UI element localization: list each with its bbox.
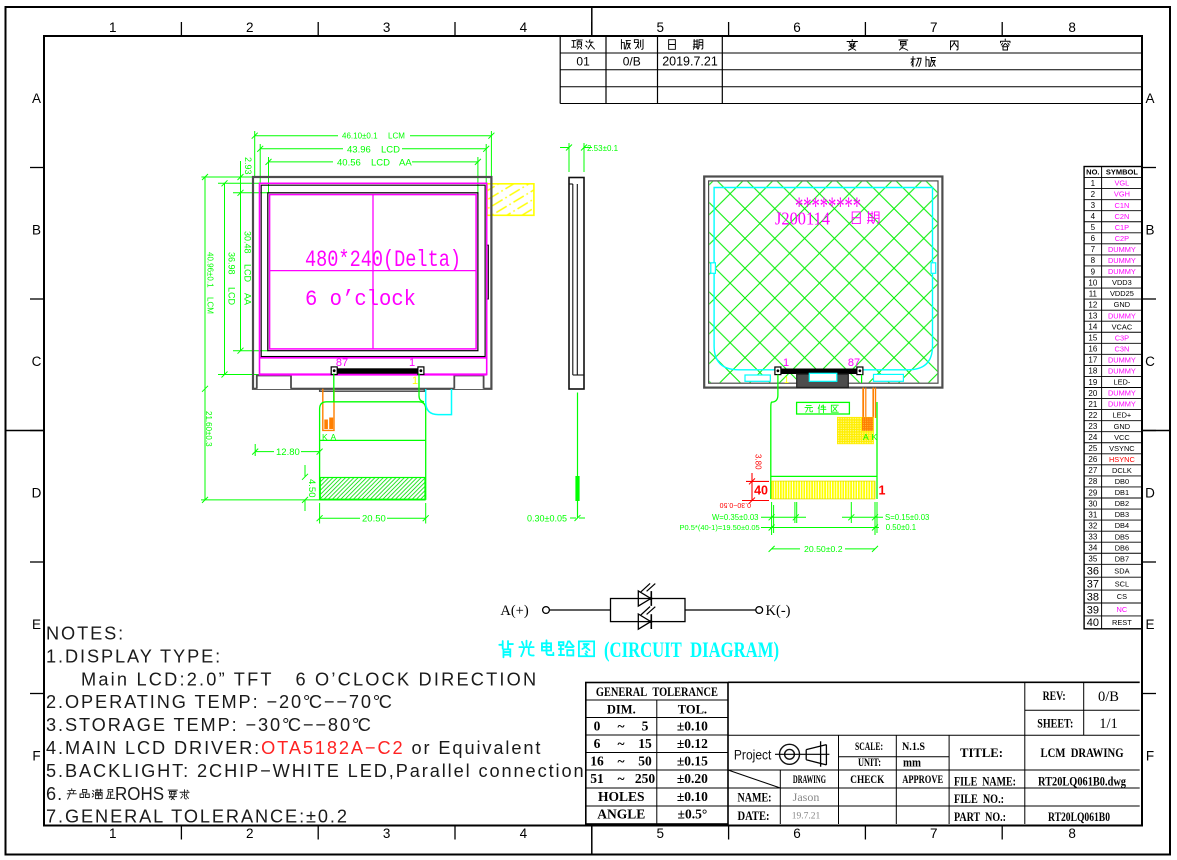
svg-text:E: E (32, 617, 41, 632)
svg-text:LCD: LCD (381, 144, 400, 155)
svg-text:HOLES: HOLES (598, 789, 645, 804)
svg-text:7: 7 (930, 826, 938, 841)
svg-text:±0.5°: ±0.5° (678, 807, 708, 822)
svg-text:DATE:: DATE: (738, 809, 770, 823)
svg-text:0/B: 0/B (1098, 689, 1119, 705)
svg-text:Jason: Jason (793, 790, 820, 804)
svg-text:20: 20 (1088, 389, 1097, 398)
svg-text:7.GENERAL TOLERANCE:±0.2: 7.GENERAL TOLERANCE:±0.2 (46, 807, 349, 827)
svg-text:DUMMY: DUMMY (1108, 267, 1136, 276)
svg-text:(CIRCUIT DIAGRAM): (CIRCUIT DIAGRAM) (604, 637, 779, 662)
svg-text:DB2: DB2 (1115, 499, 1129, 508)
svg-text:15: 15 (638, 736, 652, 751)
svg-text:LCM: LCM (206, 297, 215, 314)
svg-text:9: 9 (1091, 267, 1096, 276)
svg-text:DUMMY: DUMMY (1108, 400, 1136, 409)
svg-text:28: 28 (1088, 477, 1097, 486)
svg-text:SCALE:: SCALE: (855, 741, 883, 753)
svg-text:0.50±0.1: 0.50±0.1 (886, 523, 916, 532)
svg-text:DIM.: DIM. (607, 702, 636, 716)
svg-text:30.48: 30.48 (243, 231, 253, 254)
svg-text:mm: mm (903, 755, 921, 770)
svg-text:35: 35 (1088, 555, 1097, 564)
svg-text:ANGLE: ANGLE (597, 807, 645, 822)
svg-text:B: B (1145, 222, 1154, 237)
svg-text:38: 38 (1087, 591, 1099, 603)
svg-text:C1P: C1P (1115, 223, 1129, 232)
svg-text:Project: Project (734, 746, 772, 762)
svg-text:2.93: 2.93 (243, 157, 253, 175)
svg-text:40.56: 40.56 (337, 157, 361, 168)
svg-text:VCC: VCC (1114, 433, 1130, 442)
svg-text:1: 1 (109, 826, 117, 841)
svg-text:14: 14 (1088, 323, 1097, 332)
svg-text:~: ~ (617, 754, 624, 769)
svg-text:6: 6 (594, 736, 601, 751)
svg-text:11: 11 (1089, 289, 1098, 298)
svg-text:17: 17 (1088, 356, 1097, 365)
svg-text:LED-: LED- (1113, 378, 1130, 387)
svg-text:HSYNC: HSYNC (1109, 455, 1136, 464)
svg-text:12: 12 (1088, 300, 1097, 309)
svg-text:1: 1 (784, 375, 789, 385)
svg-text:DUMMY: DUMMY (1108, 256, 1136, 265)
svg-text:A: A (1145, 91, 1154, 106)
svg-text:NAME:: NAME: (738, 791, 772, 805)
svg-text:50: 50 (638, 754, 652, 769)
svg-text:8: 8 (1091, 256, 1096, 265)
svg-text:20.50: 20.50 (362, 514, 386, 525)
svg-text:APPROVE: APPROVE (902, 772, 943, 786)
svg-text:LCD: LCD (371, 157, 390, 168)
svg-text:5.BACKLIGHT: 2CHIP−WHITE LED,P: 5.BACKLIGHT: 2CHIP−WHITE LED,Parallel co… (46, 761, 586, 781)
svg-text:3: 3 (383, 826, 391, 841)
svg-text:AA: AA (399, 157, 412, 168)
svg-text:DB7: DB7 (1115, 554, 1129, 563)
svg-text:SHEET:: SHEET: (1037, 715, 1073, 730)
svg-text:01: 01 (576, 55, 590, 69)
svg-text:DB4: DB4 (1115, 521, 1129, 530)
svg-text:39: 39 (1087, 604, 1099, 616)
svg-text:LCM: LCM (388, 132, 405, 141)
svg-text:LCM DRAWING: LCM DRAWING (1041, 745, 1124, 760)
svg-text:2: 2 (246, 826, 254, 841)
svg-text:GENERAL TOLERANCE: GENERAL TOLERANCE (596, 684, 718, 699)
svg-text:A: A (863, 432, 869, 442)
svg-text:3: 3 (1091, 201, 1096, 210)
svg-text:~: ~ (617, 719, 624, 734)
svg-text:6: 6 (793, 20, 801, 35)
svg-text:SDA: SDA (1114, 566, 1129, 575)
svg-text:VDD25: VDD25 (1110, 289, 1134, 298)
svg-text:25: 25 (1088, 444, 1097, 453)
svg-text:DB1: DB1 (1115, 488, 1129, 497)
svg-text:REV:: REV: (1043, 688, 1066, 703)
svg-text:DCLK: DCLK (1112, 466, 1132, 475)
svg-text:5: 5 (656, 20, 664, 35)
svg-text:51: 51 (590, 771, 604, 786)
svg-text:CS: CS (1117, 592, 1127, 601)
svg-text:ROHS: ROHS (115, 784, 164, 804)
svg-text:0: 0 (594, 719, 601, 734)
svg-text:4.MAIN LCD DRIVER:OTA5182A−C2: 4.MAIN LCD DRIVER:OTA5182A−C2 or Equival… (46, 738, 542, 758)
svg-text:0/B: 0/B (623, 55, 641, 69)
svg-text:21: 21 (1088, 400, 1097, 409)
svg-text:15: 15 (1088, 334, 1097, 343)
svg-text:B: B (32, 222, 41, 237)
svg-text:24: 24 (1088, 433, 1097, 442)
svg-text:16: 16 (590, 754, 604, 769)
svg-text:F: F (1146, 749, 1154, 764)
svg-text:250: 250 (635, 771, 656, 786)
svg-text:22: 22 (1088, 411, 1097, 420)
svg-text:40.96±0.1: 40.96±0.1 (206, 252, 215, 288)
svg-text:C2N: C2N (1115, 212, 1130, 221)
svg-text:27: 27 (1088, 466, 1097, 475)
svg-text:K(-): K(-) (766, 603, 791, 619)
svg-text:~: ~ (617, 736, 624, 751)
svg-text:40: 40 (1087, 617, 1099, 629)
svg-text:RT20LQ061B0: RT20LQ061B0 (1048, 809, 1110, 824)
svg-text:1.DISPLAY TYPE:: 1.DISPLAY TYPE: (46, 646, 222, 666)
svg-text:VGH: VGH (1114, 190, 1130, 199)
svg-text:CHECK: CHECK (850, 772, 885, 786)
svg-text:1: 1 (412, 375, 418, 387)
svg-text:40: 40 (754, 484, 768, 498)
svg-text:480*240(Delta): 480*240(Delta) (305, 247, 461, 274)
svg-text:7: 7 (930, 20, 938, 35)
svg-text:87: 87 (336, 357, 348, 369)
svg-text:2.53±0.1: 2.53±0.1 (587, 144, 619, 153)
svg-text:16: 16 (1088, 345, 1097, 354)
svg-text:VDD3: VDD3 (1112, 278, 1132, 287)
svg-text:F: F (32, 749, 40, 764)
svg-text:5: 5 (656, 826, 664, 841)
svg-text:DB5: DB5 (1115, 532, 1129, 541)
svg-text:34: 34 (1088, 544, 1097, 553)
svg-text:8: 8 (1068, 20, 1076, 35)
svg-text:5: 5 (1091, 223, 1096, 232)
svg-text:S=0.15±0.03: S=0.15±0.03 (885, 513, 929, 522)
svg-text:±0.10: ±0.10 (677, 719, 708, 734)
svg-text:4: 4 (520, 826, 528, 841)
svg-text:TOL.: TOL. (678, 702, 707, 716)
svg-text:C2P: C2P (1115, 234, 1129, 243)
svg-text:1: 1 (783, 357, 789, 369)
svg-text:E: E (1145, 617, 1154, 632)
svg-text:GND: GND (1114, 300, 1130, 309)
svg-text:PART NO.:: PART NO.: (954, 810, 1006, 824)
svg-text:C: C (1145, 354, 1155, 369)
svg-text:W=0.35±0.03: W=0.35±0.03 (712, 513, 759, 522)
svg-text:VGL: VGL (1115, 179, 1130, 188)
svg-text:43.96: 43.96 (347, 144, 371, 155)
svg-text:6: 6 (1091, 234, 1096, 243)
svg-text:DB6: DB6 (1115, 543, 1129, 552)
svg-text:1: 1 (879, 484, 886, 498)
svg-text:29: 29 (1088, 488, 1097, 497)
svg-text:1/1: 1/1 (1099, 716, 1118, 732)
svg-text:6: 6 (793, 826, 801, 841)
svg-text:0.30±0.05: 0.30±0.05 (527, 514, 567, 524)
svg-text:NO.: NO. (1086, 168, 1099, 177)
svg-text:87: 87 (848, 357, 860, 369)
svg-text:23: 23 (1088, 422, 1097, 431)
svg-text:18: 18 (1088, 367, 1097, 376)
svg-text:26: 26 (1088, 455, 1097, 464)
svg-text:A: A (32, 91, 41, 106)
svg-text:RT20LQ061B0.dwg: RT20LQ061B0.dwg (1038, 774, 1126, 789)
svg-text:UNIT:: UNIT: (858, 757, 881, 769)
svg-text:LCD: LCD (243, 264, 253, 283)
svg-text:36.98: 36.98 (227, 252, 237, 275)
svg-text:21.60±0.3: 21.60±0.3 (204, 411, 213, 447)
svg-text:LED+: LED+ (1113, 411, 1132, 420)
svg-text:C: C (32, 354, 42, 369)
svg-text:P0.5*(40-1)=19.50±0.05: P0.5*(40-1)=19.50±0.05 (679, 523, 759, 532)
svg-text:~: ~ (617, 771, 624, 786)
svg-text:VCAC: VCAC (1112, 322, 1133, 331)
svg-text:8: 8 (1068, 826, 1076, 841)
svg-text:12.80: 12.80 (276, 447, 300, 458)
svg-text:2: 2 (246, 20, 254, 35)
svg-text:10: 10 (1088, 278, 1097, 287)
svg-text:±0.15: ±0.15 (677, 754, 708, 769)
svg-text:46.10±0.1: 46.10±0.1 (342, 132, 378, 141)
svg-text:2: 2 (1091, 190, 1096, 199)
svg-text:33: 33 (1088, 532, 1097, 541)
svg-text:3.80: 3.80 (754, 454, 763, 470)
svg-text:LCD: LCD (227, 287, 237, 306)
svg-text:4.50: 4.50 (306, 479, 317, 498)
svg-text:GND: GND (1114, 422, 1130, 431)
svg-text:A(+): A(+) (500, 603, 528, 619)
svg-text:DUMMY: DUMMY (1108, 367, 1136, 376)
svg-text:6 o’clock: 6 o’clock (305, 286, 416, 312)
svg-text:31: 31 (1088, 510, 1097, 519)
svg-text:3: 3 (383, 20, 391, 35)
svg-text:19: 19 (1088, 378, 1097, 387)
svg-text:NOTES:: NOTES: (46, 624, 125, 644)
svg-text:Main LCD:2.0” TFT 6 O’CLOCK: Main LCD:2.0” TFT 6 O’CLOCK DIRECTION (81, 669, 538, 689)
svg-text:37: 37 (1087, 579, 1099, 591)
svg-text:±0.12: ±0.12 (677, 736, 708, 751)
svg-text:4: 4 (520, 20, 528, 35)
svg-text:C3P: C3P (1115, 333, 1129, 342)
svg-text:K: K (872, 432, 878, 442)
svg-text:SYMBOL: SYMBOL (1106, 168, 1139, 177)
svg-text:C3N: C3N (1115, 344, 1130, 353)
svg-text:3.STORAGE TEMP: −30°C−−80°C: 3.STORAGE TEMP: −30°C−−80°C (46, 715, 373, 735)
svg-text:DUMMY: DUMMY (1108, 389, 1136, 398)
svg-text:DUMMY: DUMMY (1108, 311, 1136, 320)
svg-text:FILE NO.:: FILE NO.: (954, 792, 1004, 806)
svg-text:1: 1 (409, 357, 415, 369)
svg-text:J200114: J200114 (775, 209, 830, 229)
svg-text:DB0: DB0 (1115, 477, 1129, 486)
svg-text:DB3: DB3 (1115, 510, 1129, 519)
svg-text:±0.20: ±0.20 (677, 771, 708, 786)
svg-text:±0.10: ±0.10 (677, 789, 708, 804)
svg-text:20.50±0.2: 20.50±0.2 (804, 544, 843, 554)
svg-text:4: 4 (1091, 212, 1096, 221)
svg-text:N.1.S: N.1.S (902, 741, 925, 753)
svg-text:SCL: SCL (1115, 579, 1129, 588)
svg-text:6.: 6. (46, 784, 63, 804)
svg-text:0.30~0.50: 0.30~0.50 (720, 501, 751, 508)
svg-text:2019.7.21: 2019.7.21 (662, 55, 718, 69)
svg-text:DUMMY: DUMMY (1108, 245, 1136, 254)
svg-text:5: 5 (642, 719, 649, 734)
svg-text:D: D (1145, 485, 1155, 500)
svg-text:TITLE:: TITLE: (960, 745, 1003, 760)
svg-text:2.OPERATING TEMP: −20°C−−70°C: 2.OPERATING TEMP: −20°C−−70°C (46, 692, 394, 712)
svg-text:7: 7 (1091, 245, 1096, 254)
svg-text:1: 1 (109, 20, 117, 35)
svg-text:1: 1 (1091, 179, 1096, 188)
svg-text:FILE NAME:: FILE NAME: (954, 775, 1016, 789)
svg-text:DRAWING: DRAWING (793, 772, 826, 786)
svg-text:36: 36 (1087, 566, 1099, 578)
svg-text:NC: NC (1117, 605, 1128, 614)
svg-text:13: 13 (1088, 311, 1097, 320)
svg-text:32: 32 (1088, 521, 1097, 530)
svg-text:DUMMY: DUMMY (1108, 355, 1136, 364)
svg-text:30: 30 (1088, 499, 1097, 508)
svg-text:D: D (32, 485, 42, 500)
svg-text:AA: AA (243, 293, 253, 305)
svg-text:19.7.21: 19.7.21 (792, 812, 821, 822)
svg-text:REST: REST (1112, 618, 1132, 627)
svg-text:VSYNC: VSYNC (1109, 444, 1135, 453)
svg-text:C1N: C1N (1115, 201, 1130, 210)
